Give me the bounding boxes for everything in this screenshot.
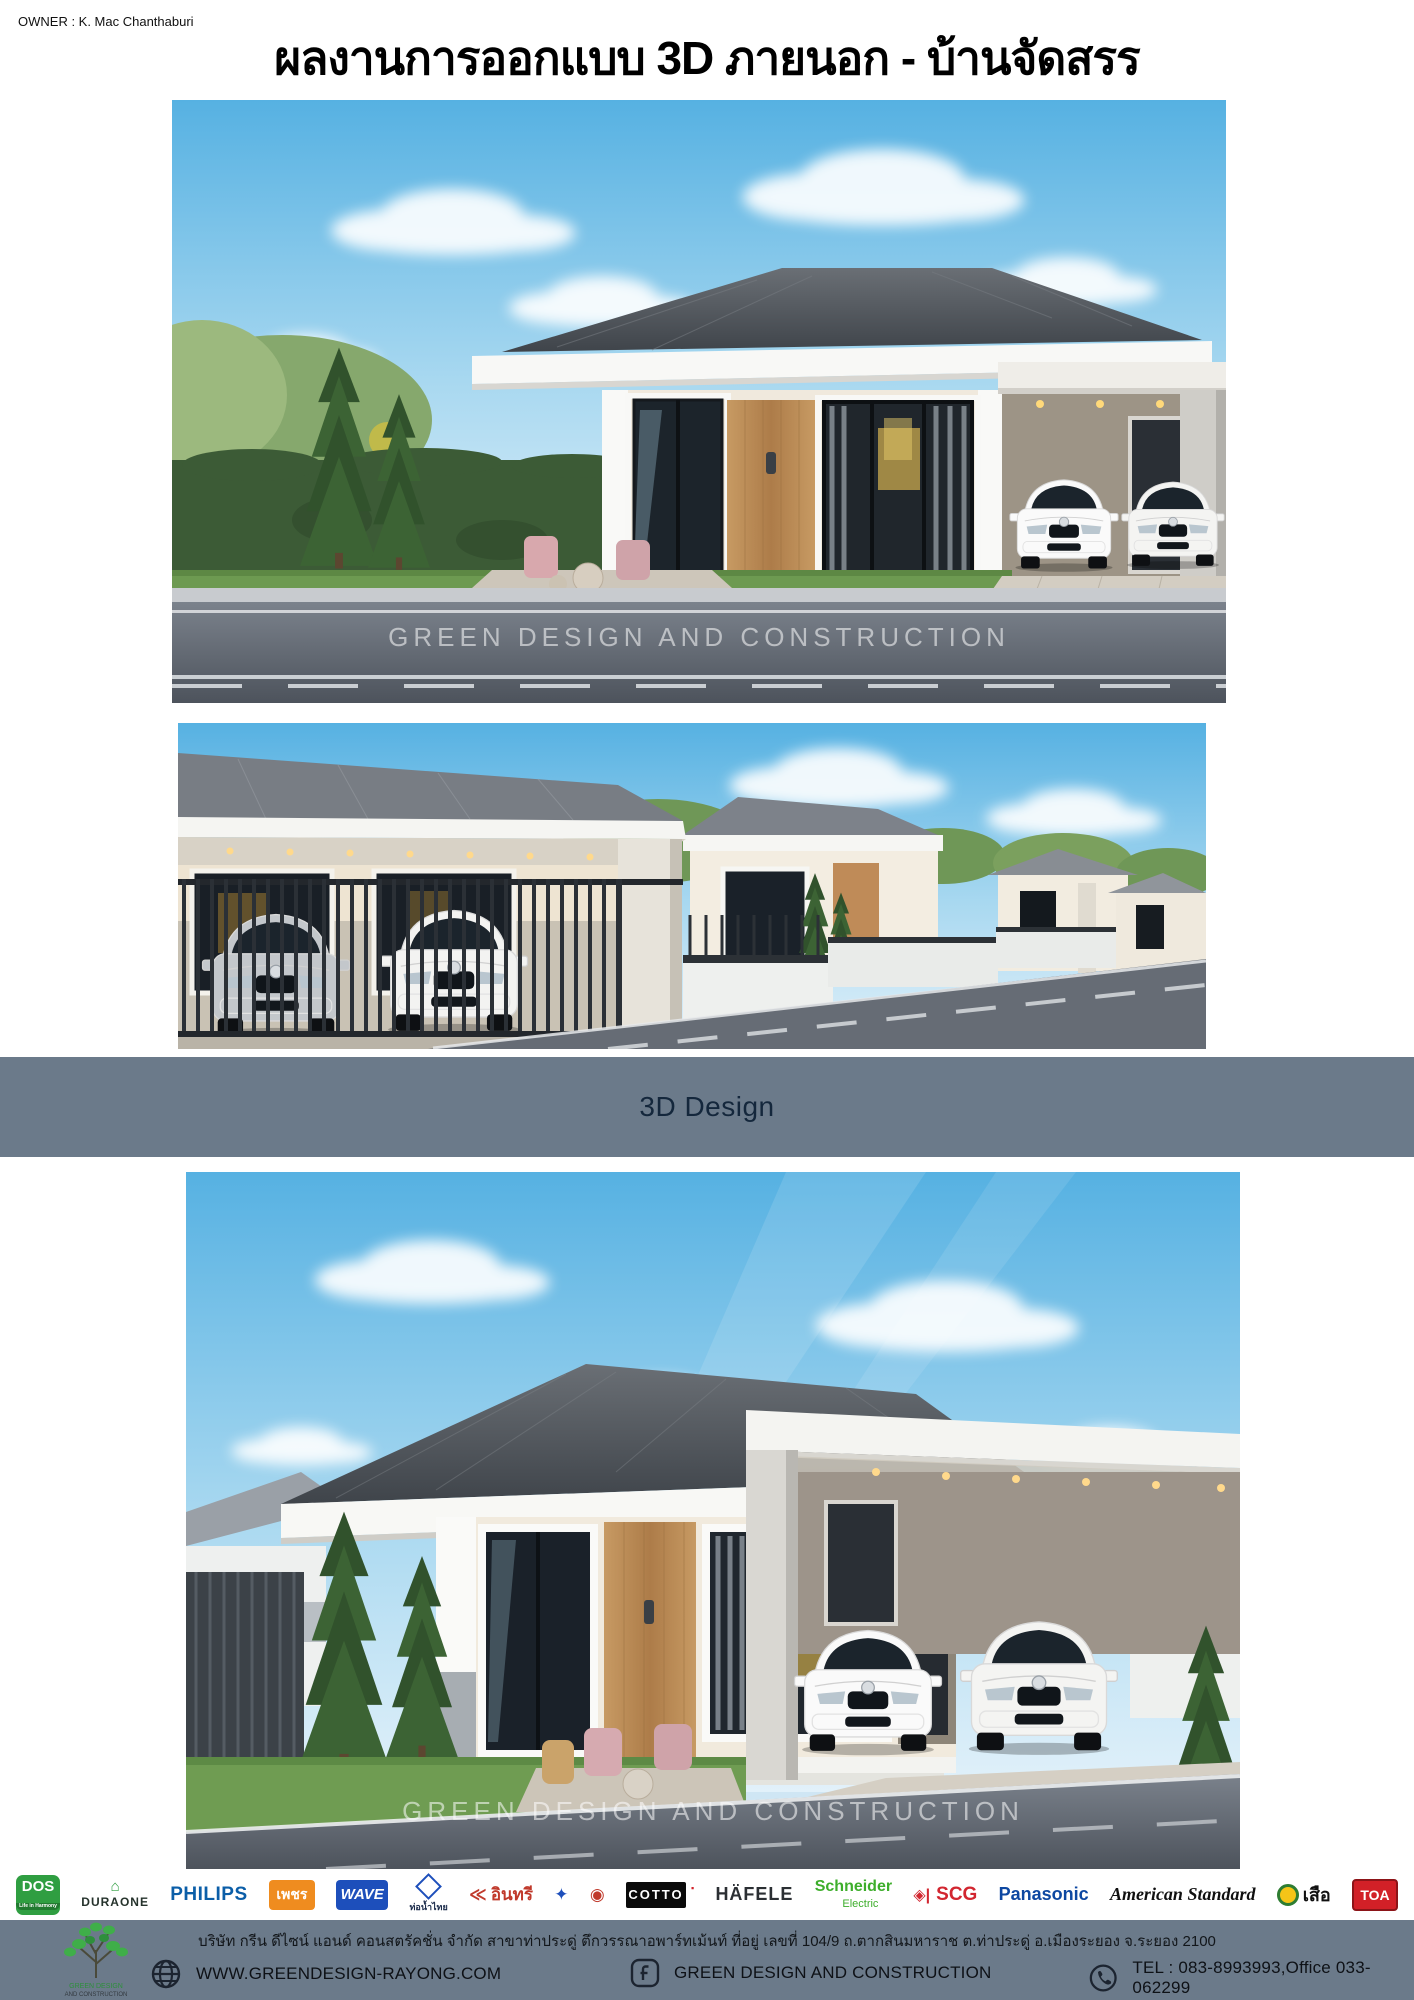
- eagle-icon: ≪: [469, 1885, 487, 1905]
- banner-label: 3D Design: [639, 1091, 774, 1123]
- brand-logo-hafele: HÄFELE: [715, 1884, 793, 1905]
- brand-logo-duraone: ⌂ DURAONE: [81, 1882, 149, 1908]
- company-name-text: GREEN DESIGN AND CONSTRUCTION: [674, 1963, 992, 1983]
- brand-logo-thonamthai: ท่อน้ำไทย: [409, 1877, 447, 1912]
- brand-logo-phet: เพชร: [269, 1880, 315, 1910]
- section-banner: 3D Design: [0, 1057, 1414, 1157]
- brand-mark-blue-icon: ✦: [554, 1885, 568, 1905]
- render-street-view: [178, 723, 1206, 1049]
- brand-logo-philips: PHILIPS: [170, 1884, 247, 1906]
- footer-facebook: GREEN DESIGN AND CONSTRUCTION: [630, 1958, 992, 1988]
- wall-sconce: [766, 452, 776, 474]
- company-tree-logo: GREEN DESIGN AND CONSTRUCTION: [50, 1922, 142, 1998]
- phone-text: TEL : 083-8993993,Office 033-062299: [1132, 1958, 1414, 1998]
- watermark-text: GREEN DESIGN AND CONSTRUCTION: [402, 1796, 1024, 1826]
- phone-icon: [1088, 1962, 1118, 1994]
- brand-logo-insee: ≪ อินทรี: [469, 1881, 533, 1908]
- render-angled-view: GREEN DESIGN AND CONSTRUCTION: [186, 1172, 1240, 1869]
- svg-text:GREEN DESIGN: GREEN DESIGN: [69, 1983, 123, 1990]
- portfolio-page: OWNER : K. Mac Chanthaburi ผลงานการออกแบ…: [0, 0, 1414, 2000]
- footer-website: WWW.GREENDESIGN-RAYONG.COM: [150, 1958, 501, 1990]
- brand-logo-american-standard: American Standard: [1110, 1884, 1256, 1905]
- brand-mark-red-icon: ◉: [590, 1885, 605, 1905]
- brand-logo-wave: WAVE: [336, 1880, 388, 1910]
- brand-logo-panasonic: Panasonic: [999, 1884, 1089, 1905]
- brand-logo-strip: DOSLife in Harmony ⌂ DURAONE PHILIPS เพช…: [0, 1869, 1414, 1920]
- website-text: WWW.GREENDESIGN-RAYONG.COM: [196, 1964, 501, 1984]
- render-front-view: GREEN DESIGN AND CONSTRUCTION: [172, 100, 1226, 703]
- company-address: บริษัท กรีน ดีไซน์ แอนด์ คอนสตรัคชั่น จำ…: [0, 1929, 1414, 1953]
- footer-phone: TEL : 083-8993993,Office 033-062299: [1088, 1958, 1414, 1998]
- page-title: ผลงานการออกแบบ 3D ภายนอก - บ้านจัดสรร: [0, 22, 1414, 95]
- brand-logo-dos: DOSLife in Harmony: [16, 1875, 60, 1915]
- brand-logo-suea: เสือ: [1277, 1880, 1331, 1909]
- brand-logo-schneider: Schneider Electric: [815, 1879, 892, 1910]
- brand-logo-toa: TOA: [1352, 1879, 1398, 1911]
- wall-sconce: [644, 1600, 654, 1624]
- watermark-text: GREEN DESIGN AND CONSTRUCTION: [388, 622, 1010, 652]
- brand-logo-cotto: COTTO▪: [626, 1882, 694, 1908]
- globe-icon: [150, 1958, 182, 1990]
- brand-logo-scg: ◈| SCG: [913, 1884, 977, 1906]
- facebook-icon: [630, 1958, 660, 1988]
- roof-icon: ⌂: [111, 1882, 120, 1892]
- scg-emblem-icon: ◈|: [913, 1885, 930, 1905]
- svg-text:AND CONSTRUCTION: AND CONSTRUCTION: [65, 1992, 128, 1998]
- diamond-icon: [415, 1873, 442, 1900]
- tiger-emblem-icon: [1277, 1884, 1299, 1906]
